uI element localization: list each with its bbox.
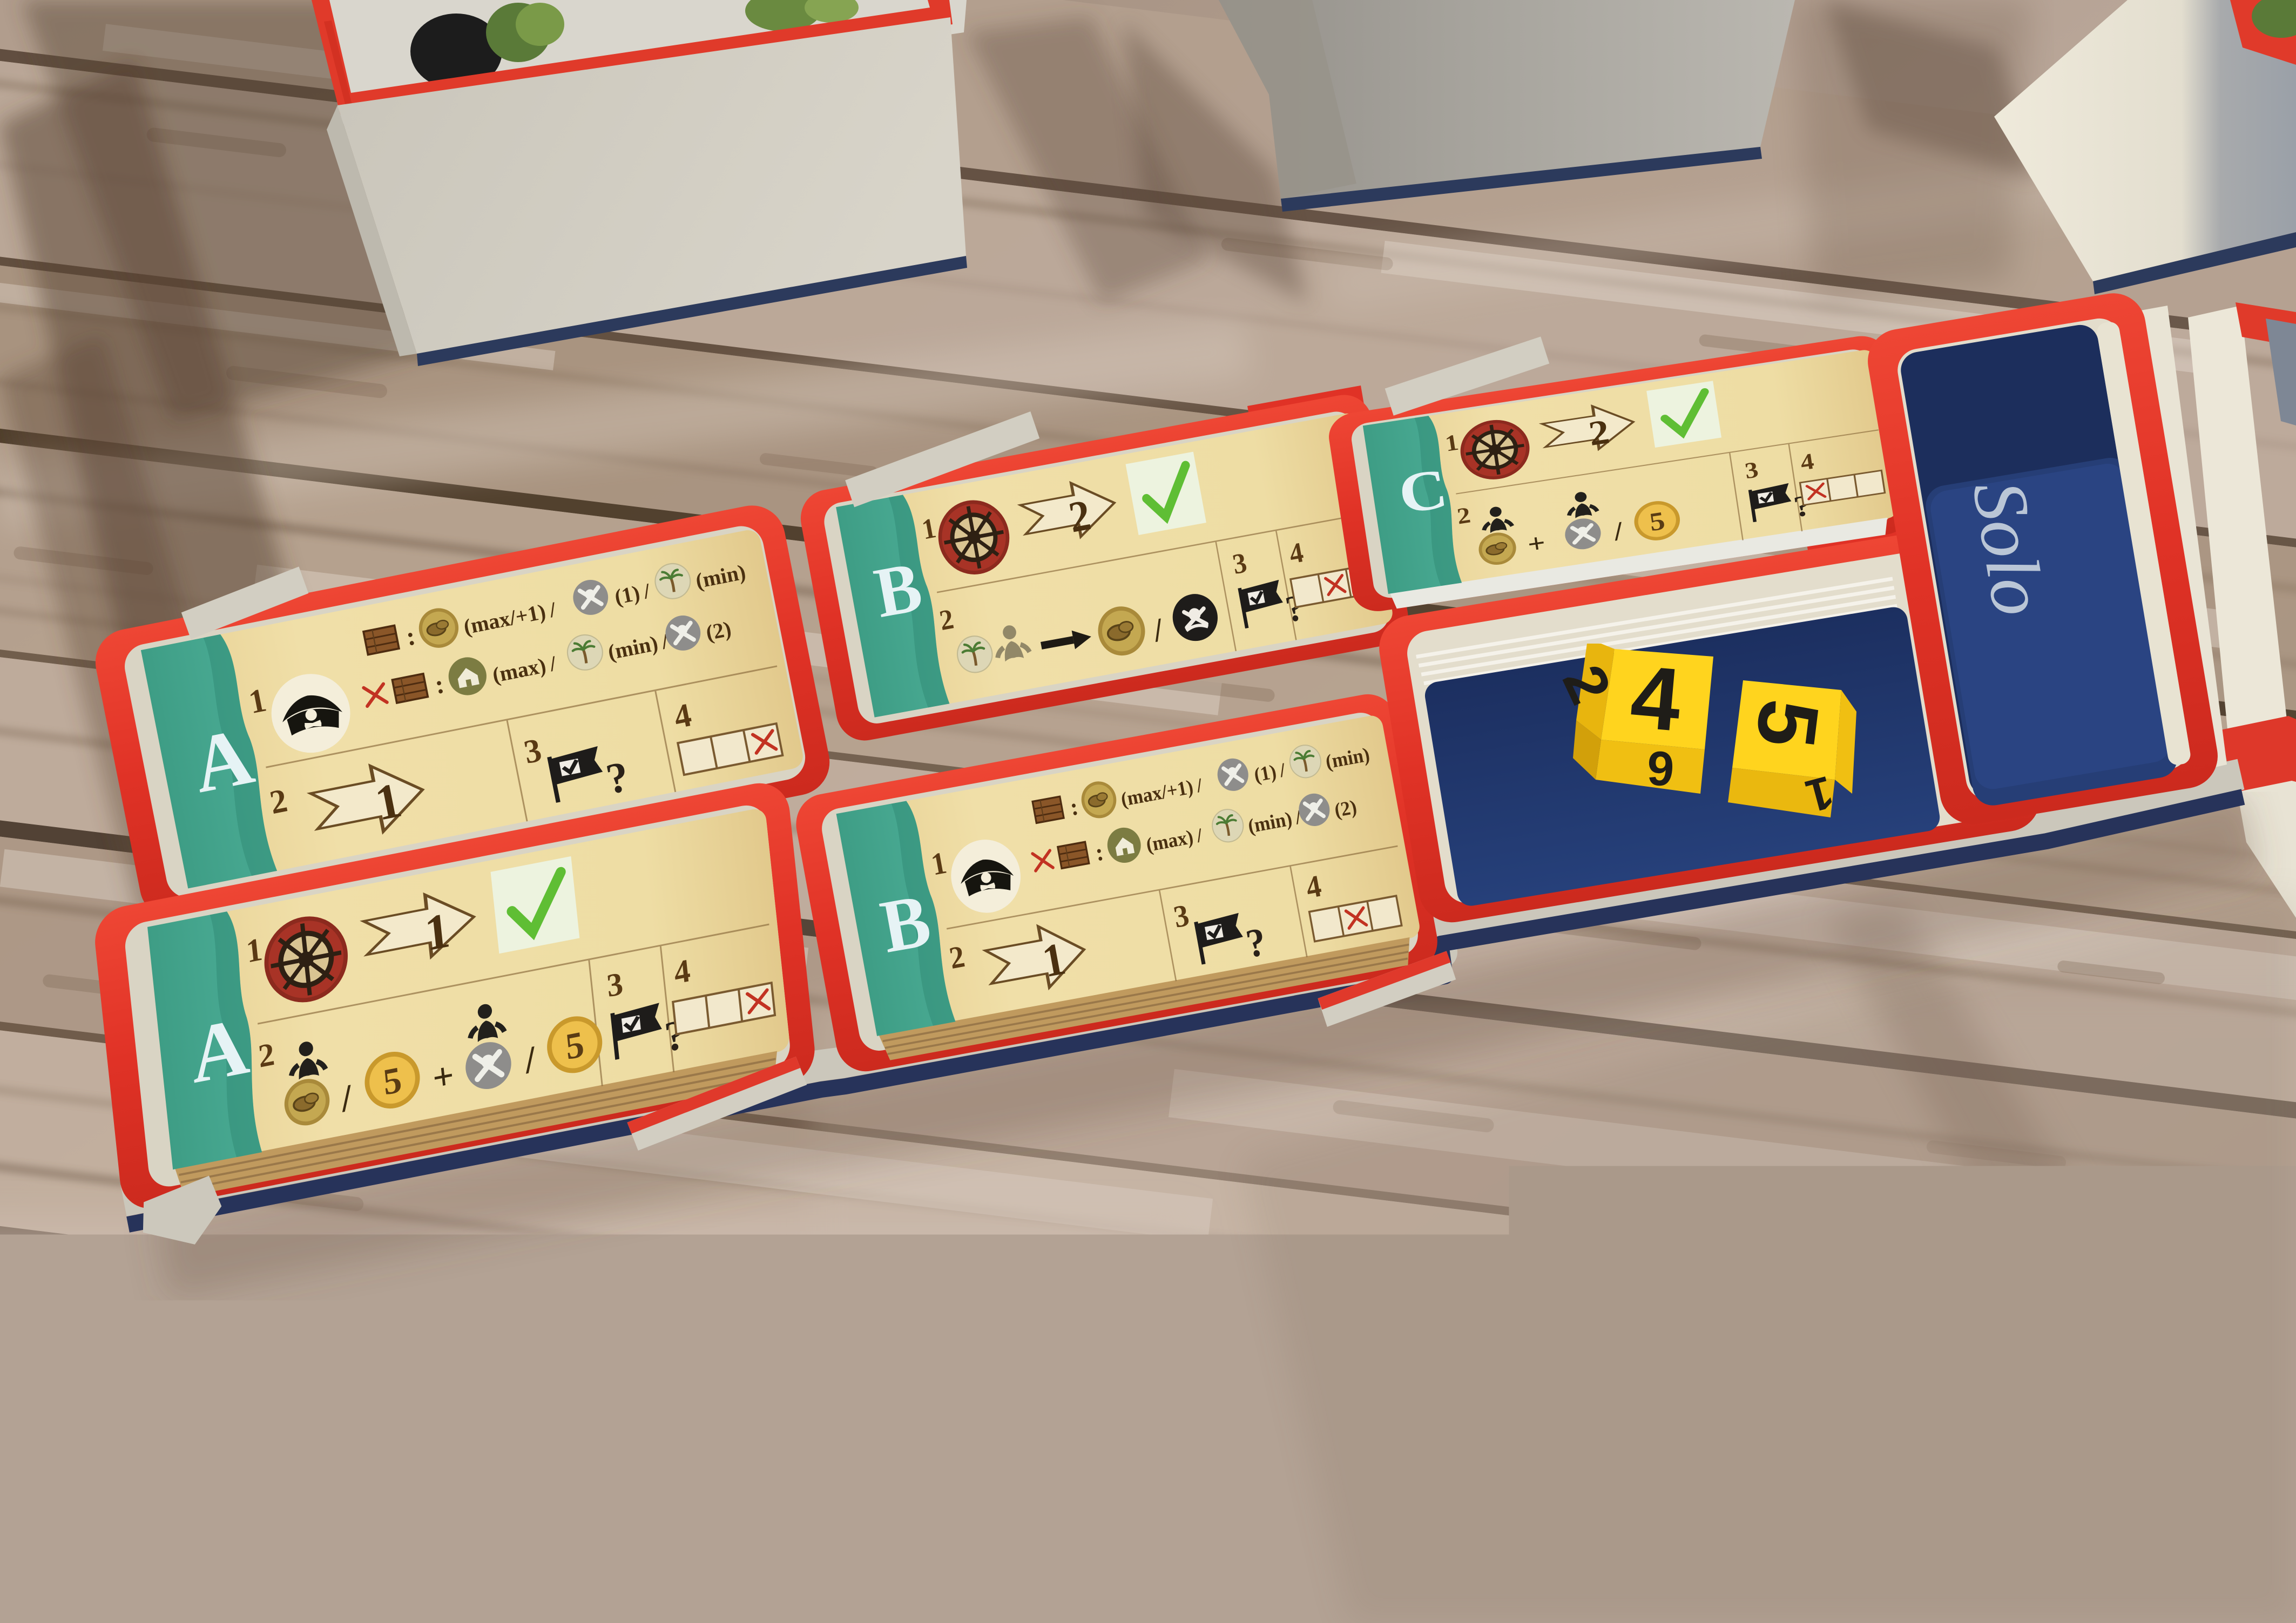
svg-text:(2): (2) xyxy=(1333,796,1359,822)
svg-text:A: A xyxy=(186,1000,253,1101)
svg-text:6: 6 xyxy=(1646,740,1676,795)
svg-text:4: 4 xyxy=(1627,646,1685,749)
svg-text:+: + xyxy=(430,1054,456,1100)
svg-text:(2): (2) xyxy=(704,617,733,645)
svg-text:C: C xyxy=(1395,456,1451,526)
